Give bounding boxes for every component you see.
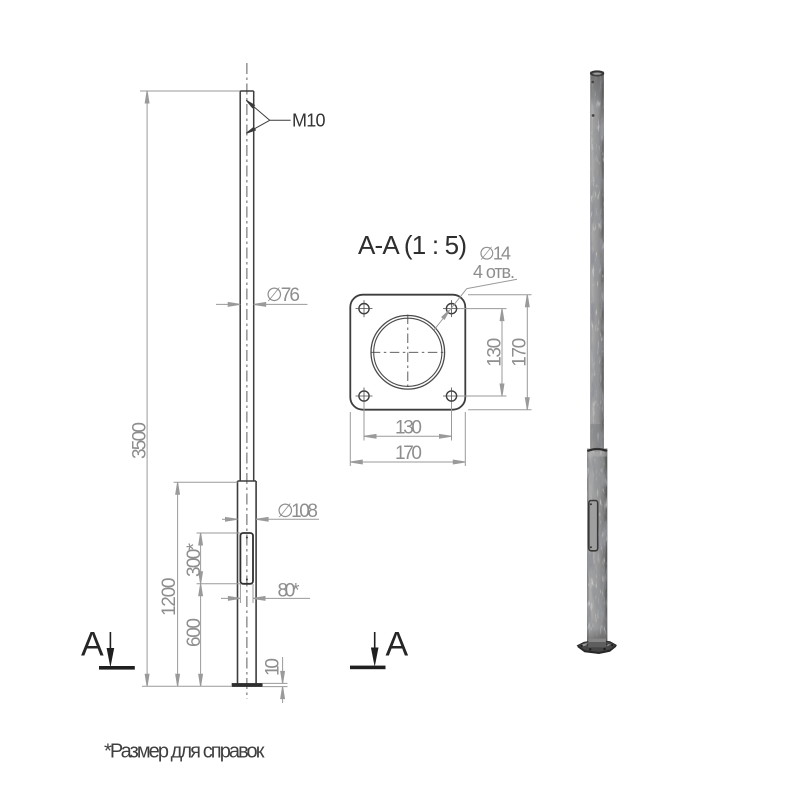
svg-text:170: 170 [510, 338, 531, 367]
svg-text:∅108: ∅108 [277, 501, 318, 522]
svg-text:300*: 300* [184, 542, 205, 577]
svg-text:A: A [386, 626, 409, 664]
svg-text:4 отв.: 4 отв. [473, 262, 515, 282]
svg-text:10: 10 [263, 658, 284, 676]
svg-text:M10: M10 [292, 111, 326, 131]
svg-text:*Размер для справок: *Размер для справок [104, 741, 265, 763]
svg-text:1200: 1200 [159, 578, 180, 617]
svg-text:3500: 3500 [129, 422, 150, 459]
svg-text:∅14: ∅14 [479, 244, 511, 264]
svg-text:∅76: ∅76 [266, 285, 300, 306]
svg-text:170: 170 [395, 443, 422, 464]
svg-text:80*: 80* [278, 581, 301, 602]
svg-text:A-A (1 : 5): A-A (1 : 5) [358, 230, 467, 260]
svg-text:130: 130 [485, 338, 506, 367]
svg-text:600: 600 [184, 618, 205, 647]
svg-text:130: 130 [395, 418, 422, 439]
svg-text:A: A [81, 626, 104, 664]
